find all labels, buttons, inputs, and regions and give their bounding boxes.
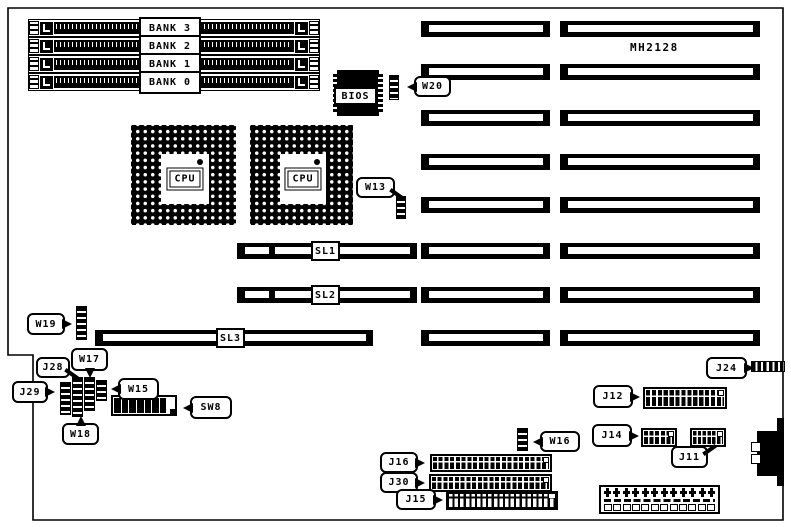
simm-bracket-icon	[309, 75, 319, 89]
power-hole-icon	[660, 504, 668, 511]
pin1-dot-icon	[314, 159, 320, 165]
callout-j15: J15	[396, 489, 436, 510]
dip-switch-pos	[114, 398, 121, 413]
dip-switch-pos	[145, 398, 152, 413]
power-hole-icon	[641, 504, 649, 511]
power-pin-icon	[708, 488, 715, 497]
header-j11	[690, 428, 726, 447]
bios-chip: BIOS	[333, 70, 383, 118]
simm-clip-icon	[295, 58, 308, 71]
callout-w20: W20	[414, 76, 451, 97]
header-j15	[446, 491, 558, 510]
expansion-slot	[421, 154, 550, 170]
simm-clip-icon	[40, 22, 53, 35]
power-pin-icon	[632, 488, 639, 497]
power-hole-icon	[632, 504, 640, 511]
header-j28-w18-pins	[72, 377, 83, 417]
power-pin-icon	[623, 488, 630, 497]
power-hole-icon	[707, 504, 715, 511]
cpu-socket-1: CPU	[131, 125, 236, 225]
expansion-slot	[421, 243, 550, 259]
cpu-label: CPU	[287, 171, 318, 188]
simm-bracket-icon	[309, 57, 319, 71]
header-j12	[643, 387, 727, 409]
cpu-socket-2: CPU	[250, 125, 353, 225]
simm-clip-icon	[295, 40, 308, 53]
motherboard-diagram: MH2128 BANK 3 BANK 2 BANK 1 BANK 0 CPU C…	[0, 0, 791, 527]
slot-sl2-label: SL2	[311, 285, 340, 305]
power-pin-icon	[642, 488, 649, 497]
expansion-slot	[421, 21, 550, 37]
power-hole-icon	[679, 504, 687, 511]
expansion-slot	[560, 287, 760, 303]
callout-j29: J29	[12, 381, 48, 403]
expansion-slot	[560, 154, 760, 170]
header-j29-pins	[60, 382, 71, 415]
expansion-slot	[560, 243, 760, 259]
simm-clip-icon	[40, 58, 53, 71]
simm-socket-bank0: BANK 0	[28, 73, 320, 91]
dip-switch-pos	[129, 398, 136, 413]
callout-w19: W19	[27, 313, 65, 335]
jumper-w20-pins	[389, 75, 399, 100]
callout-j28: J28	[36, 357, 70, 378]
simm-bracket-icon	[29, 21, 39, 35]
cpu-label: CPU	[169, 171, 200, 188]
jumper-w19-pins	[76, 306, 87, 340]
simm-clip-icon	[295, 22, 308, 35]
expansion-slot	[421, 110, 550, 126]
dip-switch-pos	[137, 398, 144, 413]
slot-sl2: SL2	[237, 287, 417, 303]
header-j14	[641, 428, 677, 447]
header-j24-pins	[751, 361, 785, 372]
power-pins-row	[604, 488, 715, 497]
power-holes-row	[604, 504, 715, 511]
callout-w18: W18	[62, 423, 99, 445]
power-pin-icon	[680, 488, 687, 497]
power-hole-icon	[604, 504, 612, 511]
simm-clip-icon	[40, 40, 53, 53]
callout-w16: W16	[540, 431, 580, 452]
dip-switch-pos	[152, 398, 159, 413]
expansion-slot	[560, 21, 760, 37]
callout-j14: J14	[592, 424, 632, 447]
power-pin-icon	[604, 488, 611, 497]
bios-label: BIOS	[334, 87, 377, 105]
jumper-w15-pins	[96, 380, 107, 401]
callout-w15: W15	[118, 378, 159, 400]
power-hole-icon	[698, 504, 706, 511]
expansion-slot	[421, 197, 550, 213]
dip-switch-pos	[167, 398, 174, 413]
jumper-w16-pins	[517, 428, 528, 451]
dip-switch-pos	[122, 398, 129, 413]
simm-bracket-icon	[309, 21, 319, 35]
simm-bracket-icon	[309, 39, 319, 53]
power-pin-icon	[670, 488, 677, 497]
simm-clip-icon	[295, 76, 308, 89]
simm-bracket-icon	[29, 39, 39, 53]
expansion-slot	[421, 287, 550, 303]
slot-sl1-label: SL1	[311, 241, 340, 261]
header-j30	[429, 474, 552, 492]
expansion-slot	[560, 330, 760, 346]
callout-w13: W13	[356, 177, 395, 198]
power-hole-icon	[670, 504, 678, 511]
slot-sl1: SL1	[237, 243, 417, 259]
power-hole-icon	[613, 504, 621, 511]
expansion-slot	[560, 197, 760, 213]
keyboard-connector-edge	[777, 418, 784, 486]
board-model-label: MH2128	[630, 41, 679, 54]
callout-j11: J11	[671, 446, 708, 468]
slot-sl3: SL3	[95, 330, 373, 346]
expansion-slot	[421, 330, 550, 346]
simm-clip-icon	[40, 76, 53, 89]
power-pin-icon	[613, 488, 620, 497]
callout-sw8: SW8	[190, 396, 232, 419]
keyboard-connector-tab	[751, 442, 761, 452]
expansion-slot	[560, 64, 760, 80]
callout-j16: J16	[380, 452, 418, 473]
power-pin-icon	[689, 488, 696, 497]
power-connector	[599, 485, 720, 514]
cpu-die: CPU	[280, 154, 326, 204]
power-hole-icon	[651, 504, 659, 511]
pin1-dot-icon	[197, 159, 203, 165]
callout-j12: J12	[593, 385, 633, 408]
simm-bracket-icon	[29, 57, 39, 71]
header-j16	[430, 454, 552, 472]
keyboard-connector-tab	[751, 454, 761, 464]
dip-switch-pos	[160, 398, 167, 413]
expansion-slot	[560, 110, 760, 126]
jumper-w17-pins	[84, 377, 95, 411]
callout-j24: J24	[706, 357, 747, 379]
slot-sl3-label: SL3	[216, 328, 245, 348]
simm-bracket-icon	[29, 75, 39, 89]
power-hole-icon	[688, 504, 696, 511]
callout-w17: W17	[71, 348, 108, 371]
power-contacts-row	[604, 499, 715, 502]
power-pin-icon	[699, 488, 706, 497]
bank-label: BANK 0	[139, 71, 201, 94]
power-hole-icon	[623, 504, 631, 511]
cpu-die: CPU	[161, 154, 209, 204]
power-pin-icon	[651, 488, 658, 497]
power-pin-icon	[661, 488, 668, 497]
